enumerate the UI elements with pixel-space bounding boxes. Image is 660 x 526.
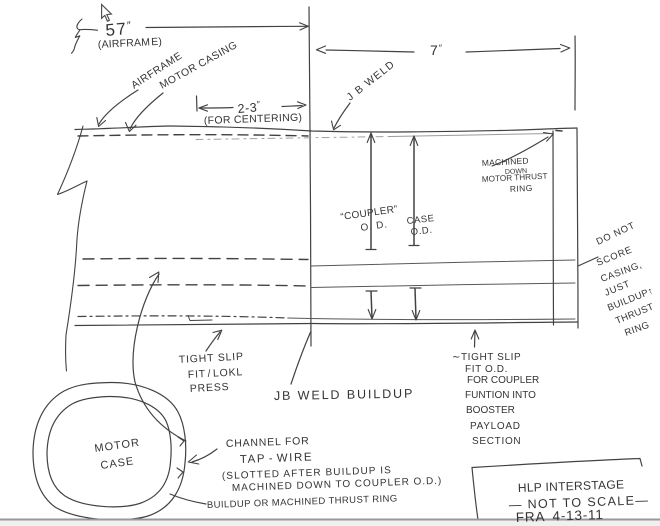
svg-text:O.D.: O.D. [410,225,433,238]
svg-text:FUNTION INTO: FUNTION INTO [465,390,536,401]
svg-text:FIT O.D.: FIT O.D. [465,364,508,375]
svg-text:PAYLOAD: PAYLOAD [470,421,521,432]
svg-text:∼TIGHT SLIP: ∼TIGHT SLIP [452,352,521,363]
svg-text:JB WELD BUILDUP: JB WELD BUILDUP [274,387,415,403]
svg-text:RING: RING [510,183,533,194]
svg-text:SECTION: SECTION [472,436,521,447]
svg-text:BOOSTER: BOOSTER [466,405,515,416]
svg-text:TAP - WIRE: TAP - WIRE [240,451,314,466]
svg-text:PRESS: PRESS [190,381,230,395]
svg-text:FRA 4-13-11: FRA 4-13-11 [516,507,604,525]
svg-text:FOR COUPLER: FOR COUPLER [467,375,539,386]
